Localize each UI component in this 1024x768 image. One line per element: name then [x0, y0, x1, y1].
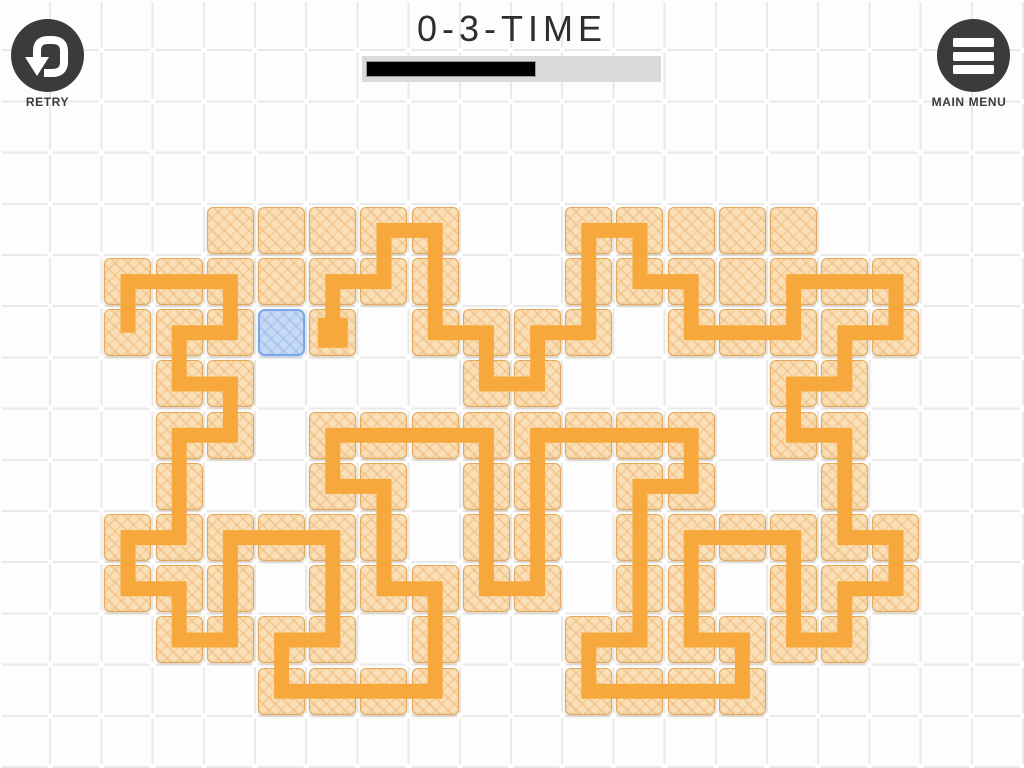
retry-button[interactable]: [11, 19, 84, 92]
path-layer[interactable]: [0, 0, 1024, 768]
path-start-marker[interactable]: [318, 318, 348, 348]
level-title: 0-3-TIME: [0, 8, 1024, 50]
game-screen: 0-3-TIME RETRY MAIN MENU: [0, 0, 1024, 768]
main-menu-button[interactable]: [937, 19, 1010, 92]
retry-label: RETRY: [11, 95, 84, 109]
menu-icon: [953, 38, 994, 79]
progress-bar: [362, 56, 661, 82]
retry-icon: [11, 19, 84, 92]
progress-fill: [367, 62, 535, 76]
maze-path-line: [128, 230, 896, 691]
main-menu-label: MAIN MENU: [928, 95, 1010, 109]
